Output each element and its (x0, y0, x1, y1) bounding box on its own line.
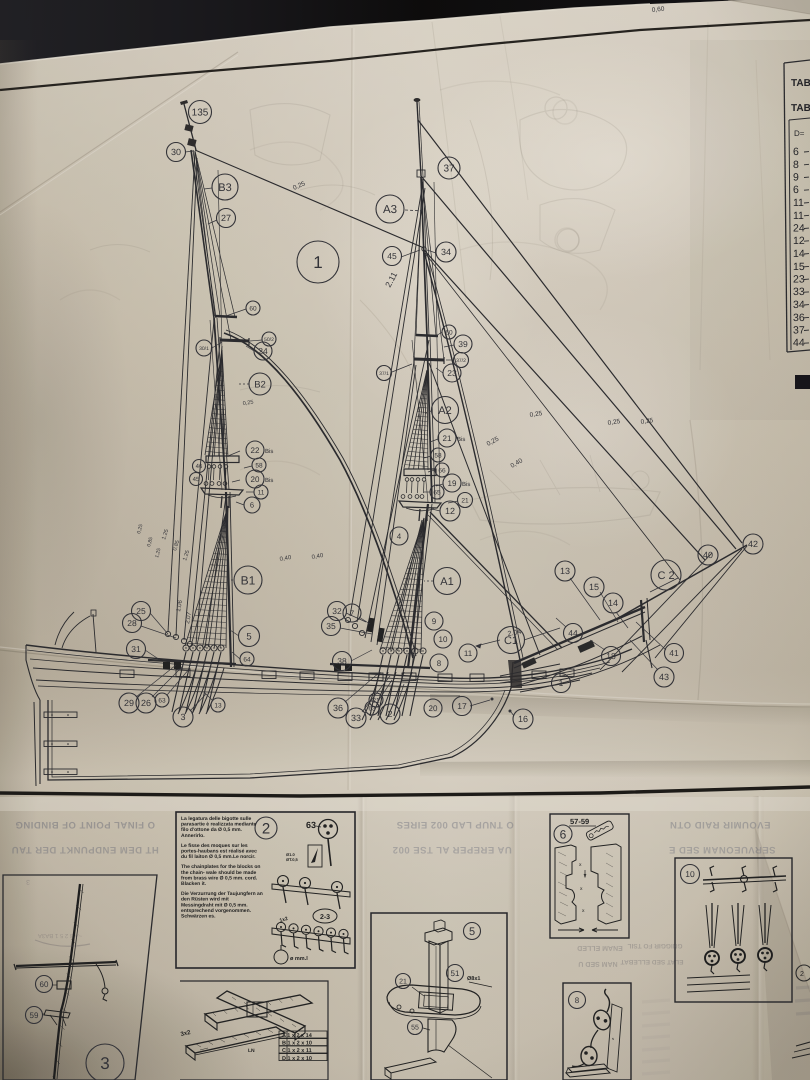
svg-text:37/1: 37/1 (379, 371, 389, 377)
svg-text:60: 60 (249, 305, 257, 312)
svg-text:A1: A1 (440, 576, 453, 588)
svg-text:du fil laiton Ø 0,5 mm.Le norc: du fil laiton Ø 0,5 mm.Le norcir. (181, 854, 256, 860)
svg-text:20: 20 (251, 475, 260, 484)
svg-text:16: 16 (518, 714, 528, 724)
svg-text:63: 63 (306, 820, 316, 830)
svg-text:EVOUMIR RAID OTN: EVOUMIR RAID OTN (670, 819, 771, 830)
svg-text:8: 8 (575, 996, 580, 1005)
svg-text:3: 3 (100, 1054, 109, 1073)
svg-text:44: 44 (568, 628, 578, 638)
svg-text:8: 8 (793, 159, 799, 171)
svg-text:36: 36 (333, 703, 343, 713)
svg-text:44: 44 (793, 337, 805, 349)
svg-text:2: 2 (800, 971, 804, 978)
svg-text:11: 11 (464, 649, 473, 658)
svg-text:Schwärzen es.: Schwärzen es. (181, 914, 216, 920)
svg-text:30/1: 30/1 (199, 346, 209, 352)
svg-text:21: 21 (372, 697, 380, 704)
svg-text:NAM SED U: NAM SED U (578, 960, 617, 967)
svg-text:46: 46 (196, 463, 203, 470)
svg-text:32: 32 (332, 606, 342, 616)
svg-text:UA EREPER AL TSE 002: UA EREPER AL TSE 002 (392, 844, 511, 855)
svg-text:Bis: Bis (265, 448, 273, 455)
svg-text:45: 45 (387, 251, 397, 261)
svg-text:2: 2 (387, 709, 392, 719)
svg-text:33: 33 (793, 286, 805, 298)
svg-text:31: 31 (131, 644, 141, 654)
svg-text:41: 41 (669, 648, 679, 658)
svg-text:63: 63 (158, 697, 166, 704)
svg-text:29: 29 (124, 698, 134, 708)
svg-text:Ø8x1: Ø8x1 (467, 976, 480, 982)
svg-text:28: 28 (127, 618, 137, 628)
svg-text:17: 17 (457, 701, 467, 711)
svg-text:Bis: Bis (462, 481, 470, 488)
svg-text:14: 14 (608, 598, 618, 608)
svg-text:O TNUP LAD 002 EIRES: O TNUP LAD 002 EIRES (396, 819, 514, 830)
svg-text:26: 26 (141, 698, 151, 708)
svg-text:24: 24 (258, 346, 268, 356)
svg-text:6: 6 (560, 827, 567, 841)
svg-text:D=: D= (794, 129, 805, 138)
svg-text:23: 23 (447, 368, 457, 378)
svg-text:TAB: TAB (791, 103, 810, 114)
svg-text:9: 9 (432, 617, 437, 626)
svg-text:Blacken it.: Blacken it. (181, 881, 207, 887)
svg-text:ØT.0,5: ØT.0,5 (286, 857, 299, 862)
svg-text:57-59: 57-59 (570, 817, 589, 826)
svg-text:64: 64 (243, 656, 251, 663)
svg-text:0,60: 0,60 (651, 6, 665, 14)
svg-text:38: 38 (337, 656, 347, 666)
svg-text:21: 21 (461, 497, 469, 504)
svg-text:11: 11 (793, 197, 804, 209)
svg-text:SERVUEONAM SED E: SERVUEONAM SED E (668, 844, 775, 855)
svg-text:Bis: Bis (457, 436, 465, 443)
svg-text:19: 19 (448, 479, 457, 488)
svg-text:10: 10 (439, 635, 448, 644)
svg-text:12: 12 (793, 235, 805, 247)
svg-text:Annerirlo.: Annerirlo. (181, 833, 205, 839)
svg-text:24: 24 (793, 223, 805, 235)
svg-text:30: 30 (171, 147, 181, 157)
svg-text:59: 59 (30, 1011, 39, 1020)
svg-text:1: 1 (559, 678, 564, 688)
svg-text:TAB: TAB (791, 78, 810, 89)
svg-text:2: 2 (262, 820, 270, 837)
svg-text:35: 35 (326, 621, 336, 631)
svg-text:14: 14 (793, 248, 805, 260)
svg-text:37: 37 (793, 325, 805, 337)
svg-text:LN: LN (248, 1048, 255, 1054)
svg-text:58: 58 (434, 452, 442, 459)
svg-text:B1: B1 (241, 573, 256, 587)
svg-text:15: 15 (589, 582, 599, 592)
svg-text:34: 34 (441, 247, 451, 257)
svg-text:5: 5 (246, 631, 251, 642)
svg-text:34: 34 (793, 299, 805, 311)
svg-text:3: 3 (180, 712, 185, 722)
svg-text:6: 6 (793, 146, 799, 158)
svg-text:37: 37 (443, 164, 455, 175)
svg-text:18: 18 (606, 651, 616, 661)
svg-text:Bis: Bis (265, 477, 273, 484)
svg-text:60: 60 (40, 980, 49, 989)
svg-text:A2: A2 (438, 405, 451, 417)
svg-text:11: 11 (258, 489, 265, 496)
svg-text:ø mm.l: ø mm.l (290, 956, 308, 962)
svg-text:55: 55 (411, 1025, 419, 1032)
svg-text:B3: B3 (218, 182, 231, 194)
svg-text:9: 9 (793, 172, 799, 184)
svg-text:8: 8 (437, 659, 442, 668)
svg-text:39: 39 (458, 339, 468, 349)
svg-text:51: 51 (451, 969, 460, 978)
svg-text:1: 1 (313, 253, 322, 272)
svg-text:ELAT SED ELLEBAT: ELAT SED ELLEBAT (620, 958, 683, 965)
svg-text:25: 25 (136, 606, 146, 616)
svg-text:s: s (612, 1036, 614, 1041)
svg-text:ENAM ELLED: ENAM ELLED (577, 944, 623, 951)
svg-text:6: 6 (250, 501, 254, 510)
svg-text:43: 43 (659, 672, 669, 682)
svg-text:22: 22 (251, 446, 260, 455)
svg-text:3: 3 (26, 878, 30, 885)
svg-text:~A 3 2 5 1 BA3A: ~A 3 2 5 1 BA3A (38, 932, 82, 939)
svg-text:C1: C1 (504, 635, 518, 647)
svg-text:23: 23 (793, 274, 805, 286)
svg-text:A3: A3 (383, 204, 397, 216)
svg-text:GNIGGIR FO TSIL: GNIGGIR FO TSIL (628, 942, 683, 949)
svg-text:6: 6 (793, 184, 799, 196)
svg-text:15: 15 (793, 261, 805, 273)
svg-text:21: 21 (399, 979, 407, 986)
svg-text:B2: B2 (254, 379, 266, 390)
svg-text:37/2: 37/2 (456, 358, 466, 364)
svg-text:HT DEM ENDPUNKT DER TAU: HT DEM ENDPUNKT DER TAU (11, 844, 159, 855)
svg-text:O FINAL POINT OF BINDING: O FINAL POINT OF BINDING (15, 819, 155, 830)
svg-text:10: 10 (685, 869, 695, 879)
svg-text:13: 13 (560, 566, 570, 576)
svg-text:36: 36 (793, 312, 805, 324)
svg-text:5: 5 (469, 926, 475, 938)
svg-text:45: 45 (193, 476, 200, 483)
svg-text:40: 40 (703, 550, 713, 560)
svg-text:2-3: 2-3 (320, 914, 330, 921)
svg-text:21: 21 (443, 434, 452, 443)
svg-text:66: 66 (438, 467, 446, 474)
svg-text:C 2: C 2 (657, 570, 674, 582)
svg-text:135: 135 (192, 108, 209, 119)
svg-text:42: 42 (748, 539, 758, 549)
svg-text:27: 27 (221, 213, 231, 223)
svg-text:60: 60 (445, 329, 453, 336)
svg-text:65: 65 (433, 489, 441, 496)
svg-text:12: 12 (445, 506, 455, 516)
svg-text:20: 20 (429, 704, 438, 713)
svg-text:D 1 x 2 x 10: D 1 x 2 x 10 (282, 1056, 312, 1062)
svg-text:33: 33 (351, 713, 361, 723)
svg-text:11: 11 (793, 210, 804, 222)
svg-text:4: 4 (397, 532, 402, 541)
svg-text:13: 13 (214, 702, 222, 709)
